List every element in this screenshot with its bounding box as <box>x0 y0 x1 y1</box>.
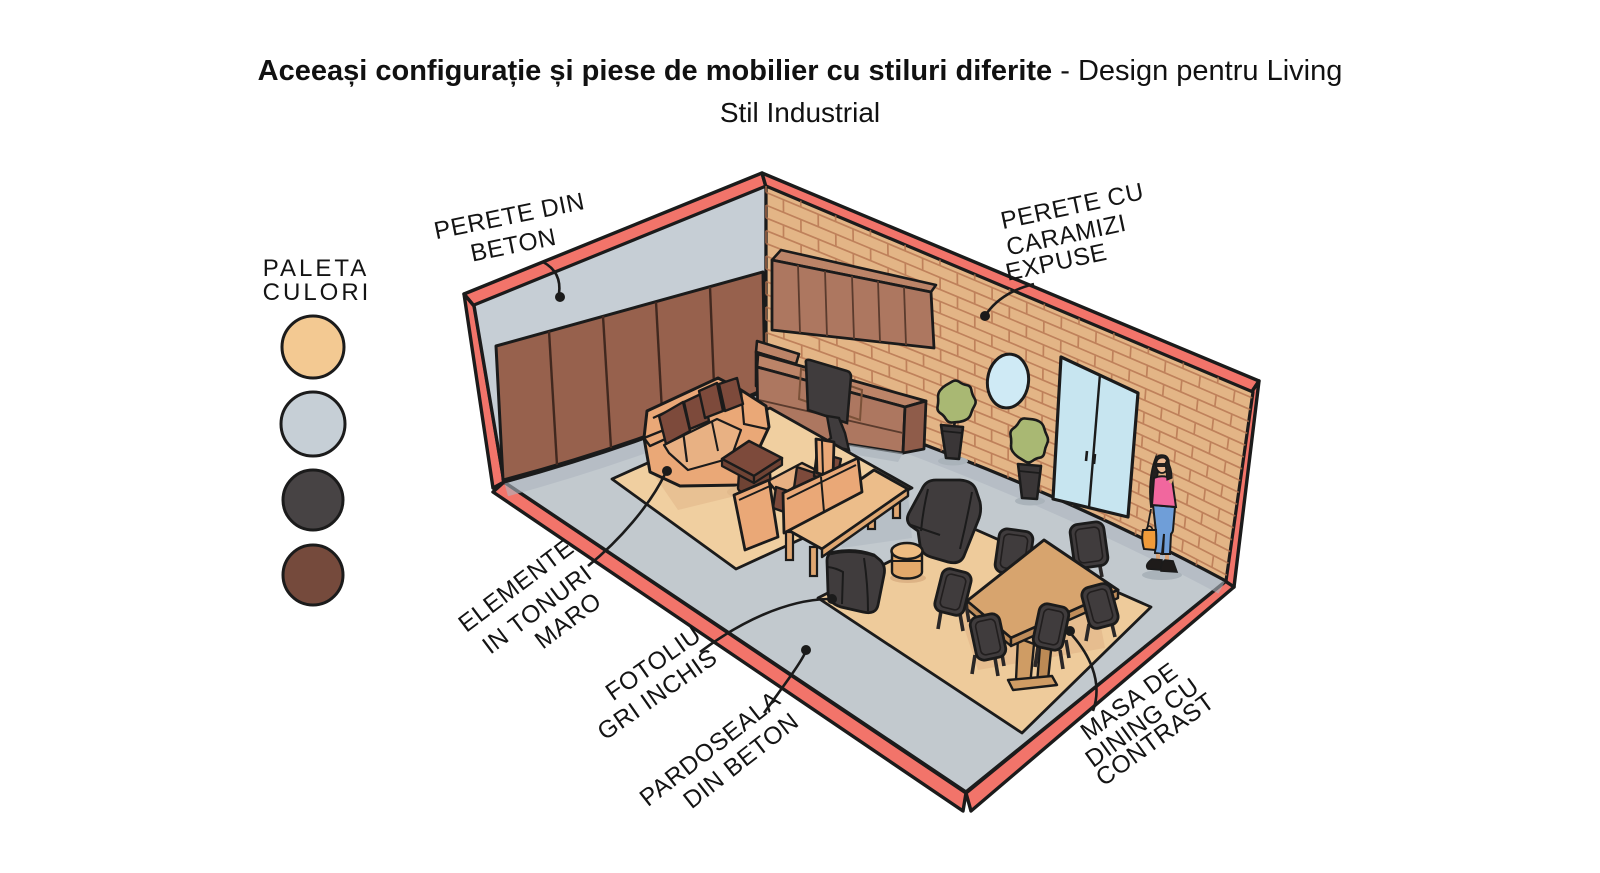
svg-text:Aceeași configurație și piese: Aceeași configurație și piese de mobilie… <box>258 55 1343 87</box>
svg-text:CULORI: CULORI <box>263 279 372 306</box>
svg-text:PALETA: PALETA <box>263 255 369 282</box>
svg-text:Stil Industrial: Stil Industrial <box>720 97 880 128</box>
